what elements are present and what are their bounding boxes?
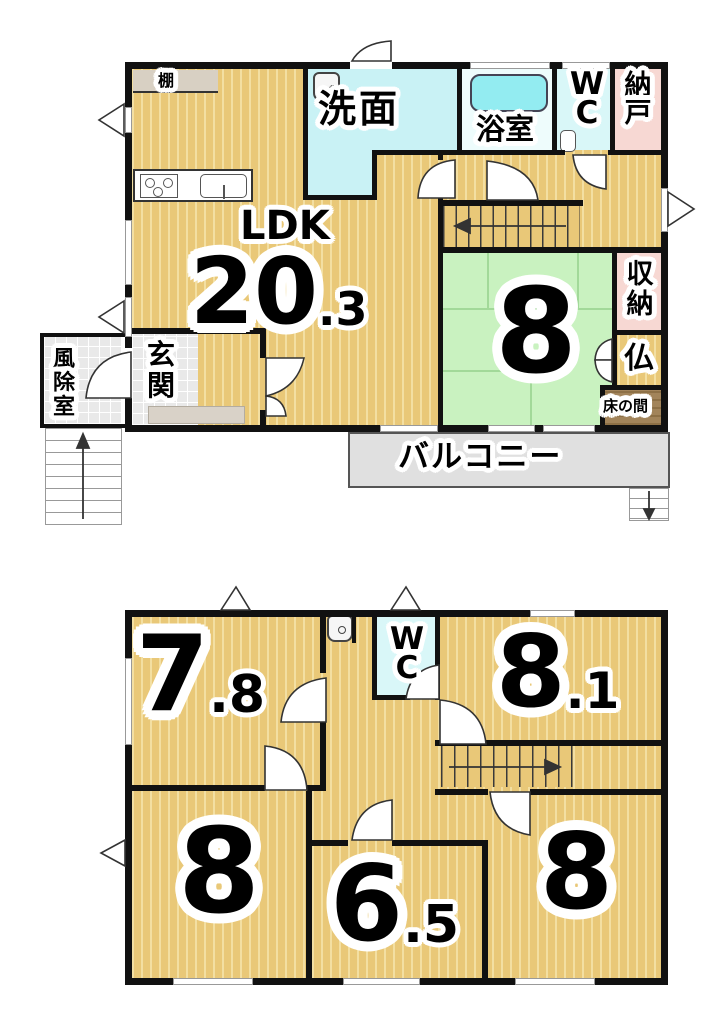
genkan-step [148,406,245,424]
wall [661,610,668,985]
wall [440,247,661,253]
label-bath: 浴室 [476,115,534,144]
wall [260,410,266,425]
wall [661,232,668,432]
shelf [133,70,218,93]
label-room-ne-area: 8 .1 [496,622,619,722]
window [543,425,595,432]
window [515,978,595,985]
room-s-main: 6 [330,852,403,957]
label-nando: 納戸 [622,72,654,129]
room-ne-decimal: .1 [566,666,620,716]
wall [438,152,443,160]
label-room-nw-area: 7 .8 [136,622,265,727]
sink-2f-icon [327,615,353,642]
wall [457,150,565,155]
wall [372,155,377,200]
wall [352,617,356,643]
wall [608,150,661,155]
wall [438,198,443,425]
vent-triangle [668,192,694,226]
window [125,658,132,745]
door-arc [352,41,391,61]
wall [40,424,125,428]
kitchen-sink-icon [200,174,247,198]
window [125,107,132,133]
tatami-joint [487,253,489,308]
wall [125,745,132,985]
wall [320,718,326,789]
wall [125,285,132,297]
room-s-decimal: .5 [403,899,459,951]
entry-stairs [45,428,122,525]
wall [125,133,132,220]
vent-triangle [99,104,124,136]
window [470,62,550,69]
wall [125,62,132,107]
wall [435,617,440,700]
door-opening [125,348,132,398]
wall [372,617,377,700]
wall [125,337,132,348]
wall [303,195,377,200]
stairs-1f [443,206,580,247]
wall [612,253,617,390]
label-balcony: バルコニー [398,442,562,473]
wall [530,789,661,795]
wall [320,617,326,673]
vent-triangle [101,840,125,866]
room-ne-main: 8 [496,622,566,722]
toilet-sink-icon [560,130,576,152]
room-nw-decimal: .8 [209,669,265,721]
window [343,978,420,985]
label-genkan: 玄関 [144,340,178,402]
label-wc1: WC [566,70,608,129]
label-butsudan: 仏 [624,344,654,374]
door-opening [350,62,392,69]
wall [435,789,488,795]
ldk-area-main: 20 [190,246,318,338]
label-room-s-area: 6 .5 [330,852,459,957]
window [125,297,132,337]
wall [306,791,312,978]
wall [125,785,265,791]
wall [372,150,462,155]
wall [303,69,308,200]
label-wc2: WC [386,625,428,684]
label-tokonoma: 床の間 [603,399,648,414]
wall [440,200,583,206]
wall [610,69,615,155]
room-nw-main: 7 [136,622,209,727]
wall [40,333,44,428]
label-fujoshitsu: 風除室 [50,348,78,421]
label-ldk-block: LDK 20 .3 [190,206,368,338]
window [488,425,535,432]
label-shuno: 収納 [624,260,656,319]
wall [435,740,668,746]
window [661,188,668,232]
label-shelf: 棚 [158,73,174,89]
wall [482,840,488,978]
label-room-se-area: 8 [540,820,613,925]
wall [392,840,488,846]
window [380,425,438,432]
wall [612,330,661,335]
vent-triangle [221,587,250,610]
wall [552,69,557,155]
balcony-stairs [629,488,669,521]
wall [40,333,125,337]
wall [457,69,462,155]
label-senmen: 洗面 [318,90,400,128]
label-room-sw-area: 8 [178,812,260,930]
window [173,978,253,985]
wall [125,610,132,658]
ldk-area: 20 .3 [190,246,368,338]
ldk-area-decimal: .3 [318,286,367,332]
stove-icon [140,174,178,198]
window [125,220,132,285]
senmen-floor-ext [308,155,372,200]
bathtub-icon [470,74,548,112]
wall [372,695,410,700]
label-washitsu-area: 8 [495,272,577,390]
wall [661,62,668,188]
vent-triangle [99,301,124,333]
vent-triangle [391,587,420,610]
tatami-joint [577,253,579,308]
stairs-2f [441,746,573,787]
wall [600,385,661,390]
floorplan-canvas: 棚 洗面 浴室 WC 納戸 LDK 20 .3 8 収納 仏 床の間 玄関 風除… [0,0,724,1024]
